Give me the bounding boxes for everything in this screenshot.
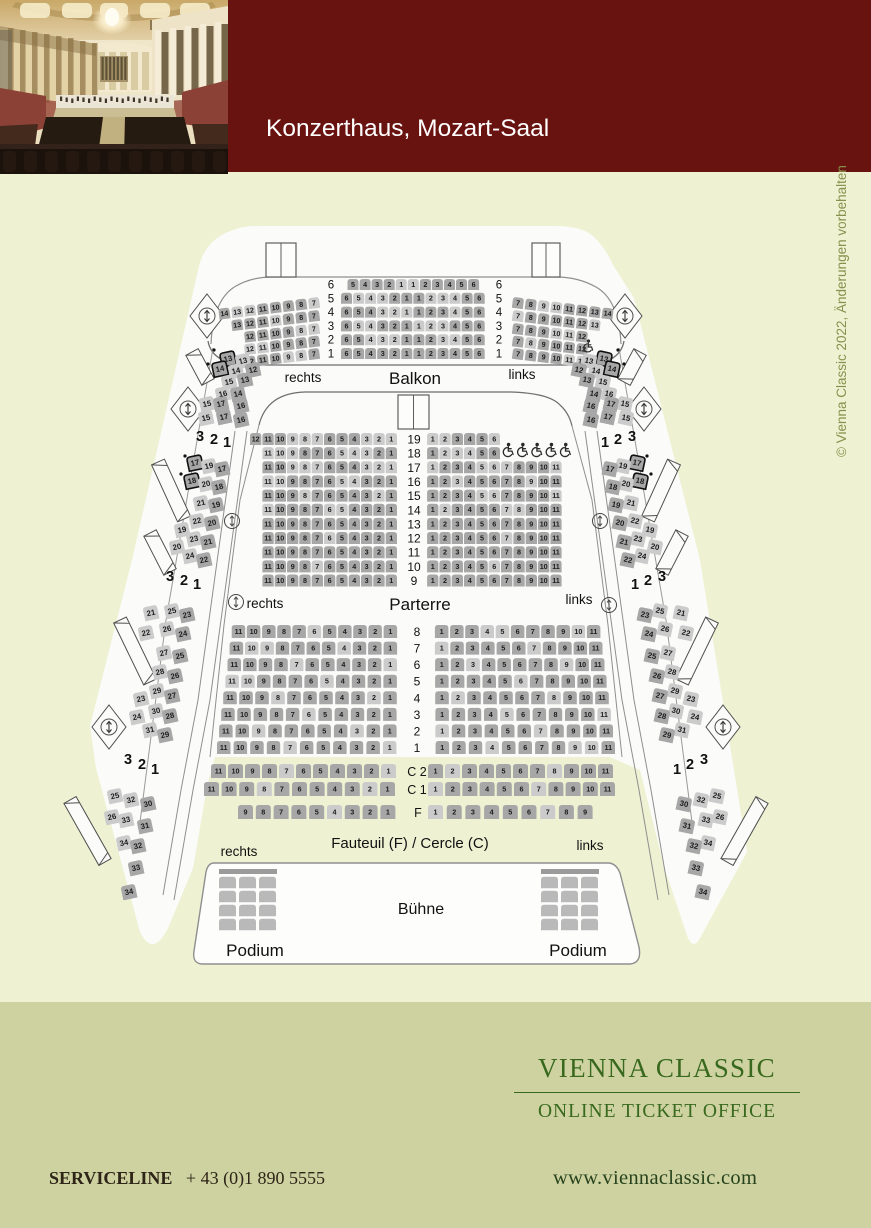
svg-text:3: 3	[628, 429, 636, 445]
svg-text:5: 5	[323, 710, 327, 719]
svg-text:10: 10	[225, 784, 233, 793]
svg-text:3: 3	[435, 280, 439, 289]
svg-text:8: 8	[276, 693, 280, 702]
svg-text:1: 1	[440, 644, 444, 653]
svg-text:12: 12	[407, 532, 421, 546]
svg-text:18: 18	[407, 447, 421, 461]
svg-text:3: 3	[365, 477, 369, 486]
svg-text:5: 5	[496, 293, 502, 305]
svg-text:1: 1	[417, 321, 421, 330]
svg-text:10: 10	[540, 562, 548, 571]
svg-text:5: 5	[480, 533, 484, 542]
svg-text:6: 6	[302, 766, 306, 775]
svg-text:2: 2	[443, 505, 447, 514]
svg-text:8: 8	[517, 505, 521, 514]
svg-text:10: 10	[276, 449, 284, 458]
svg-text:4: 4	[453, 349, 457, 358]
svg-text:7: 7	[533, 660, 537, 669]
svg-text:3: 3	[365, 519, 369, 528]
svg-text:2: 2	[423, 280, 427, 289]
svg-text:5: 5	[351, 280, 355, 289]
svg-text:7: 7	[315, 562, 319, 571]
svg-text:6: 6	[298, 784, 302, 793]
svg-text:7: 7	[505, 505, 509, 514]
svg-text:7: 7	[414, 642, 421, 656]
svg-text:1: 1	[388, 710, 392, 719]
svg-text:1: 1	[151, 762, 159, 778]
svg-text:1: 1	[405, 294, 409, 303]
svg-text:7: 7	[536, 766, 540, 775]
svg-text:3: 3	[441, 308, 445, 317]
svg-text:6: 6	[516, 627, 520, 636]
svg-text:1: 1	[388, 677, 392, 686]
svg-text:2: 2	[429, 335, 433, 344]
svg-text:5: 5	[340, 548, 344, 557]
svg-text:8: 8	[414, 625, 421, 639]
svg-text:11: 11	[596, 677, 604, 686]
svg-text:4: 4	[340, 693, 344, 702]
svg-text:10: 10	[276, 562, 284, 571]
svg-text:1: 1	[431, 463, 435, 472]
svg-text:2: 2	[373, 660, 377, 669]
svg-text:1: 1	[431, 491, 435, 500]
svg-text:8: 8	[551, 677, 555, 686]
svg-text:1: 1	[440, 660, 444, 669]
svg-text:5: 5	[328, 293, 334, 305]
svg-text:11: 11	[602, 726, 610, 735]
svg-text:3: 3	[496, 321, 502, 333]
svg-text:6: 6	[328, 562, 332, 571]
svg-text:F: F	[414, 806, 422, 820]
svg-text:6: 6	[492, 576, 496, 585]
svg-text:9: 9	[245, 784, 249, 793]
svg-text:9: 9	[566, 677, 570, 686]
svg-text:7: 7	[505, 491, 509, 500]
svg-text:4: 4	[369, 335, 373, 344]
svg-text:1: 1	[388, 627, 392, 636]
svg-text:2: 2	[372, 677, 376, 686]
svg-text:9: 9	[262, 677, 266, 686]
svg-text:15: 15	[407, 489, 421, 503]
svg-text:3: 3	[375, 280, 379, 289]
svg-text:8: 8	[549, 660, 553, 669]
svg-text:4: 4	[468, 463, 472, 472]
svg-text:4: 4	[352, 533, 356, 542]
svg-text:2: 2	[368, 784, 372, 793]
svg-text:4: 4	[369, 308, 373, 317]
svg-text:11: 11	[590, 627, 598, 636]
svg-text:4: 4	[333, 784, 337, 793]
svg-text:3: 3	[455, 505, 459, 514]
svg-text:5: 5	[465, 308, 469, 317]
svg-text:2: 2	[377, 576, 381, 585]
svg-text:8: 8	[279, 660, 283, 669]
svg-text:9: 9	[291, 463, 295, 472]
svg-text:Parterre: Parterre	[389, 595, 450, 614]
svg-text:11: 11	[208, 784, 216, 793]
svg-text:3: 3	[700, 752, 708, 768]
svg-text:2: 2	[387, 280, 391, 289]
svg-text:8: 8	[557, 743, 561, 752]
svg-text:2: 2	[429, 308, 433, 317]
svg-text:2: 2	[443, 576, 447, 585]
svg-text:10: 10	[552, 341, 561, 351]
svg-text:5: 5	[480, 463, 484, 472]
svg-text:13: 13	[233, 307, 242, 317]
svg-text:9: 9	[529, 548, 533, 557]
svg-text:10: 10	[271, 315, 280, 325]
svg-text:6: 6	[328, 463, 332, 472]
svg-text:7: 7	[531, 627, 535, 636]
svg-text:7: 7	[505, 519, 509, 528]
svg-text:8: 8	[555, 726, 559, 735]
svg-text:9: 9	[529, 576, 533, 585]
svg-text:6: 6	[477, 321, 481, 330]
svg-text:5: 5	[502, 766, 506, 775]
svg-text:6: 6	[311, 644, 315, 653]
svg-text:3: 3	[455, 449, 459, 458]
svg-text:9: 9	[263, 660, 267, 669]
svg-text:13: 13	[590, 320, 599, 330]
svg-text:5: 5	[465, 349, 469, 358]
svg-text:9: 9	[265, 644, 269, 653]
svg-text:1: 1	[417, 349, 421, 358]
svg-text:1: 1	[417, 308, 421, 317]
svg-text:1: 1	[389, 576, 393, 585]
svg-text:11: 11	[594, 660, 602, 669]
svg-text:1: 1	[440, 693, 444, 702]
svg-text:7: 7	[279, 807, 283, 816]
svg-text:4: 4	[468, 477, 472, 486]
svg-text:8: 8	[517, 477, 521, 486]
svg-text:C 1: C 1	[407, 783, 427, 797]
svg-text:9: 9	[573, 743, 577, 752]
svg-text:5: 5	[340, 477, 344, 486]
svg-text:3: 3	[455, 434, 459, 443]
svg-text:1: 1	[601, 435, 609, 451]
svg-text:4: 4	[489, 710, 493, 719]
svg-text:1: 1	[405, 321, 409, 330]
svg-text:10: 10	[552, 328, 561, 338]
svg-text:5: 5	[503, 677, 507, 686]
svg-text:4: 4	[468, 576, 472, 585]
svg-text:5: 5	[504, 693, 508, 702]
svg-text:6: 6	[492, 505, 496, 514]
svg-text:4: 4	[352, 463, 356, 472]
svg-text:1: 1	[431, 533, 435, 542]
svg-text:7: 7	[539, 726, 543, 735]
svg-text:1: 1	[405, 308, 409, 317]
svg-text:2: 2	[377, 491, 381, 500]
svg-text:3: 3	[358, 644, 362, 653]
svg-text:5: 5	[501, 644, 505, 653]
svg-text:2: 2	[377, 477, 381, 486]
svg-text:8: 8	[303, 562, 307, 571]
svg-text:8: 8	[303, 477, 307, 486]
svg-text:6: 6	[521, 710, 525, 719]
svg-text:2: 2	[443, 491, 447, 500]
svg-text:10: 10	[271, 328, 280, 338]
svg-text:5: 5	[480, 505, 484, 514]
svg-text:2: 2	[370, 766, 374, 775]
svg-text:2: 2	[210, 432, 218, 448]
svg-text:2: 2	[393, 335, 397, 344]
svg-text:2: 2	[372, 693, 376, 702]
svg-text:5: 5	[319, 766, 323, 775]
svg-text:4: 4	[485, 784, 489, 793]
svg-text:4: 4	[468, 434, 472, 443]
svg-text:8: 8	[303, 519, 307, 528]
svg-text:9: 9	[565, 660, 569, 669]
svg-text:10: 10	[250, 627, 258, 636]
svg-text:Balkon: Balkon	[389, 369, 441, 388]
svg-text:1: 1	[389, 505, 393, 514]
svg-text:7: 7	[315, 576, 319, 585]
svg-text:3: 3	[473, 726, 477, 735]
svg-text:14: 14	[603, 308, 612, 318]
svg-text:9: 9	[583, 807, 587, 816]
svg-text:9: 9	[291, 533, 295, 542]
svg-text:10: 10	[574, 627, 582, 636]
svg-text:11: 11	[565, 355, 574, 365]
svg-text:3: 3	[468, 784, 472, 793]
svg-text:8: 8	[273, 726, 277, 735]
svg-text:9: 9	[529, 491, 533, 500]
svg-text:16: 16	[407, 475, 421, 489]
svg-text:5: 5	[502, 784, 506, 793]
svg-text:3: 3	[328, 321, 334, 333]
svg-text:1: 1	[388, 693, 392, 702]
svg-text:6: 6	[492, 434, 496, 443]
svg-text:1: 1	[386, 784, 390, 793]
svg-text:9: 9	[291, 505, 295, 514]
svg-text:11: 11	[215, 766, 223, 775]
svg-text:3: 3	[455, 562, 459, 571]
svg-text:12: 12	[245, 305, 254, 315]
svg-text:8: 8	[546, 627, 550, 636]
svg-text:9: 9	[571, 726, 575, 735]
svg-text:8: 8	[303, 491, 307, 500]
svg-text:7: 7	[297, 627, 301, 636]
svg-text:8: 8	[517, 491, 521, 500]
svg-text:2: 2	[368, 807, 372, 816]
svg-text:2: 2	[372, 710, 376, 719]
svg-text:7: 7	[293, 677, 297, 686]
svg-text:1: 1	[440, 627, 444, 636]
svg-text:3: 3	[455, 533, 459, 542]
svg-text:9: 9	[244, 807, 248, 816]
svg-text:3: 3	[455, 491, 459, 500]
svg-text:2: 2	[443, 533, 447, 542]
svg-text:5: 5	[340, 576, 344, 585]
svg-text:11: 11	[258, 317, 267, 327]
svg-text:5: 5	[340, 533, 344, 542]
svg-text:2: 2	[429, 349, 433, 358]
svg-text:10: 10	[276, 533, 284, 542]
svg-text:4: 4	[336, 766, 340, 775]
svg-text:9: 9	[570, 766, 574, 775]
svg-text:11: 11	[264, 533, 272, 542]
svg-text:Fauteuil (F) / Cercle (C): Fauteuil (F) / Cercle (C)	[331, 835, 489, 852]
svg-text:5: 5	[500, 627, 504, 636]
svg-text:1: 1	[223, 435, 231, 451]
svg-text:2: 2	[452, 807, 456, 816]
svg-text:10: 10	[540, 463, 548, 472]
svg-text:9: 9	[267, 627, 271, 636]
svg-text:6: 6	[522, 726, 526, 735]
svg-text:8: 8	[517, 463, 521, 472]
svg-text:6: 6	[345, 349, 349, 358]
svg-text:5: 5	[507, 743, 511, 752]
svg-text:10: 10	[242, 693, 250, 702]
svg-text:10: 10	[582, 693, 590, 702]
svg-text:2: 2	[373, 627, 377, 636]
svg-text:4: 4	[488, 693, 492, 702]
svg-text:10: 10	[586, 784, 594, 793]
svg-text:10: 10	[407, 560, 421, 574]
svg-text:4: 4	[369, 321, 373, 330]
svg-text:3: 3	[124, 752, 132, 768]
svg-text:3: 3	[350, 807, 354, 816]
svg-text:4: 4	[343, 627, 347, 636]
svg-text:10: 10	[236, 743, 244, 752]
svg-text:3: 3	[468, 766, 472, 775]
svg-text:4: 4	[453, 335, 457, 344]
svg-text:7: 7	[315, 434, 319, 443]
svg-text:27: 27	[663, 648, 673, 659]
svg-text:3: 3	[470, 627, 474, 636]
svg-text:17: 17	[606, 399, 616, 410]
svg-text:9: 9	[529, 477, 533, 486]
svg-text:2: 2	[371, 743, 375, 752]
svg-text:3: 3	[365, 548, 369, 557]
svg-text:10: 10	[232, 766, 240, 775]
svg-text:2: 2	[414, 724, 421, 738]
svg-text:9: 9	[291, 562, 295, 571]
svg-text:4: 4	[487, 677, 491, 686]
svg-text:2: 2	[377, 505, 381, 514]
svg-text:1: 1	[440, 677, 444, 686]
svg-text:12: 12	[577, 305, 586, 315]
svg-text:3: 3	[365, 562, 369, 571]
svg-text:6: 6	[328, 449, 332, 458]
svg-text:3: 3	[365, 505, 369, 514]
svg-text:17: 17	[190, 458, 200, 469]
svg-text:Podium: Podium	[226, 941, 284, 960]
svg-text:6: 6	[328, 434, 332, 443]
svg-text:1: 1	[434, 766, 438, 775]
svg-text:links: links	[576, 838, 603, 853]
svg-text:12: 12	[577, 318, 586, 328]
svg-text:7: 7	[537, 710, 541, 719]
svg-text:4: 4	[341, 660, 345, 669]
svg-text:3: 3	[365, 463, 369, 472]
svg-text:10: 10	[580, 677, 588, 686]
svg-text:6: 6	[297, 807, 301, 816]
svg-text:10: 10	[540, 533, 548, 542]
svg-text:5: 5	[508, 807, 512, 816]
svg-text:1: 1	[440, 710, 444, 719]
svg-text:2: 2	[138, 757, 146, 773]
svg-text:10: 10	[238, 726, 246, 735]
svg-text:4: 4	[339, 710, 343, 719]
svg-text:8: 8	[517, 548, 521, 557]
svg-text:10: 10	[276, 505, 284, 514]
svg-text:11: 11	[552, 477, 560, 486]
svg-text:13: 13	[590, 307, 599, 317]
svg-text:5: 5	[328, 627, 332, 636]
svg-text:10: 10	[552, 353, 561, 363]
svg-text:6: 6	[477, 308, 481, 317]
svg-text:1: 1	[431, 562, 435, 571]
svg-text:11: 11	[264, 491, 272, 500]
svg-text:1: 1	[431, 519, 435, 528]
svg-text:11: 11	[552, 548, 560, 557]
svg-text:10: 10	[276, 477, 284, 486]
svg-text:8: 8	[303, 463, 307, 472]
svg-text:8: 8	[517, 576, 521, 585]
svg-text:4: 4	[468, 519, 472, 528]
svg-text:6: 6	[306, 726, 310, 735]
svg-text:9: 9	[563, 644, 567, 653]
svg-text:13: 13	[407, 517, 421, 531]
svg-text:5: 5	[502, 660, 506, 669]
svg-text:8: 8	[303, 505, 307, 514]
svg-text:6: 6	[492, 519, 496, 528]
svg-text:5: 5	[340, 505, 344, 514]
svg-text:1: 1	[431, 477, 435, 486]
svg-text:5: 5	[465, 294, 469, 303]
svg-text:10: 10	[584, 710, 592, 719]
svg-text:2: 2	[443, 519, 447, 528]
svg-text:1: 1	[414, 741, 421, 755]
svg-text:17: 17	[632, 458, 642, 469]
svg-text:3: 3	[474, 743, 478, 752]
svg-text:4: 4	[490, 743, 494, 752]
svg-text:2: 2	[377, 533, 381, 542]
svg-text:12: 12	[577, 331, 586, 341]
svg-text:2: 2	[455, 627, 459, 636]
svg-text:2: 2	[456, 693, 460, 702]
svg-text:3: 3	[441, 294, 445, 303]
svg-text:6: 6	[477, 294, 481, 303]
svg-text:4: 4	[485, 627, 489, 636]
svg-text:10: 10	[578, 660, 586, 669]
svg-text:10: 10	[276, 463, 284, 472]
svg-text:8: 8	[303, 449, 307, 458]
svg-text:2: 2	[373, 644, 377, 653]
svg-text:1: 1	[389, 449, 393, 458]
svg-text:8: 8	[554, 784, 558, 793]
svg-text:1: 1	[387, 766, 391, 775]
svg-text:2: 2	[451, 784, 455, 793]
svg-text:2: 2	[180, 573, 188, 589]
svg-text:9: 9	[570, 710, 574, 719]
svg-text:1: 1	[328, 349, 334, 361]
svg-text:4: 4	[363, 280, 367, 289]
svg-text:5: 5	[322, 726, 326, 735]
svg-text:3: 3	[365, 491, 369, 500]
svg-text:4: 4	[485, 766, 489, 775]
svg-text:3: 3	[455, 519, 459, 528]
svg-text:4: 4	[468, 562, 472, 571]
svg-text:5: 5	[326, 660, 330, 669]
svg-text:11: 11	[264, 505, 272, 514]
svg-text:2: 2	[457, 743, 461, 752]
svg-text:4: 4	[489, 726, 493, 735]
svg-text:10: 10	[540, 477, 548, 486]
svg-text:14: 14	[407, 503, 421, 517]
